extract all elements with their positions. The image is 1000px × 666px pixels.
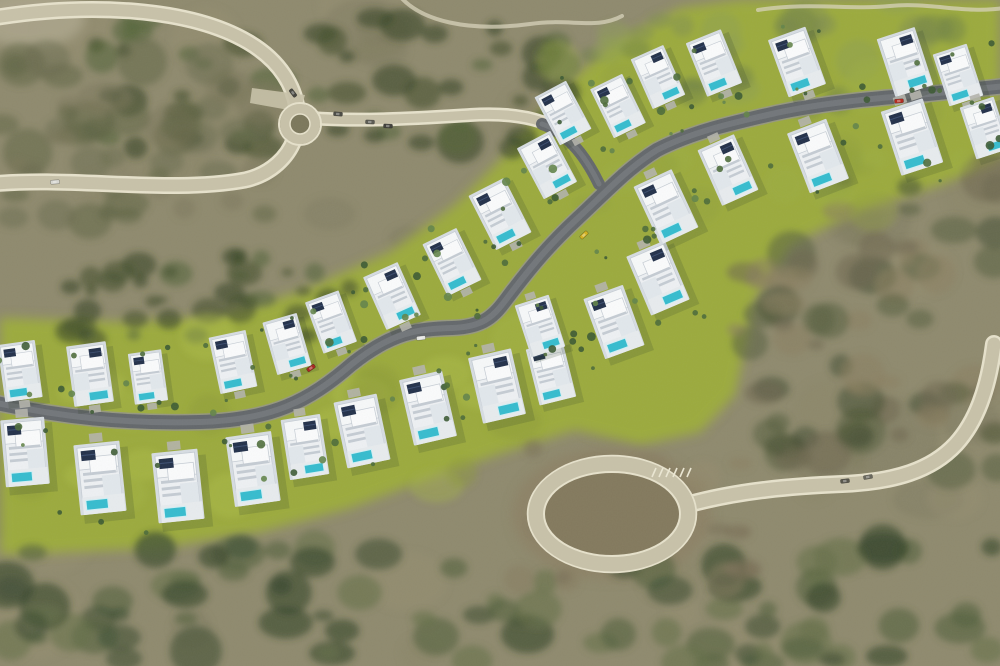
photo-grain-overlay	[0, 0, 1000, 666]
screenshot-root	[0, 0, 1000, 666]
aerial-site-render	[0, 0, 1000, 666]
